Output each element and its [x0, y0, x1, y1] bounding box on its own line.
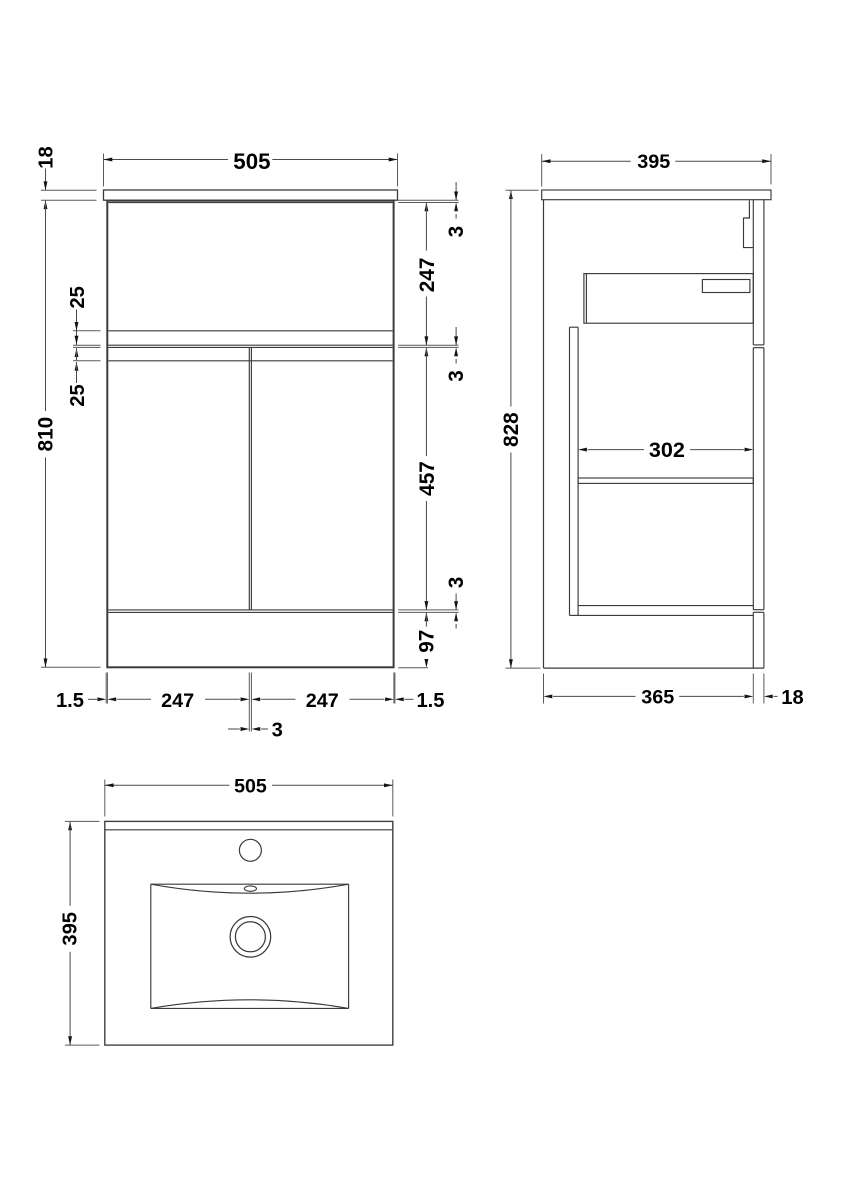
svg-text:247: 247	[306, 690, 339, 712]
svg-text:395: 395	[60, 912, 82, 946]
svg-text:505: 505	[233, 149, 270, 174]
svg-text:1.5: 1.5	[56, 690, 84, 712]
svg-text:3: 3	[272, 720, 283, 742]
svg-text:3: 3	[445, 226, 468, 238]
svg-text:810: 810	[35, 417, 58, 452]
svg-text:505: 505	[234, 776, 267, 798]
svg-text:302: 302	[649, 437, 685, 462]
svg-text:247: 247	[161, 690, 194, 712]
svg-text:365: 365	[641, 686, 674, 708]
svg-text:25: 25	[67, 286, 89, 308]
svg-text:457: 457	[416, 461, 439, 496]
svg-text:3: 3	[445, 577, 468, 589]
svg-text:1.5: 1.5	[416, 690, 444, 712]
svg-text:18: 18	[35, 146, 57, 168]
svg-text:828: 828	[500, 412, 523, 447]
svg-text:18: 18	[781, 687, 803, 709]
svg-text:247: 247	[416, 258, 439, 293]
svg-text:395: 395	[637, 151, 670, 173]
svg-text:3: 3	[445, 370, 468, 382]
svg-text:97: 97	[416, 630, 439, 653]
svg-text:25: 25	[67, 384, 89, 406]
